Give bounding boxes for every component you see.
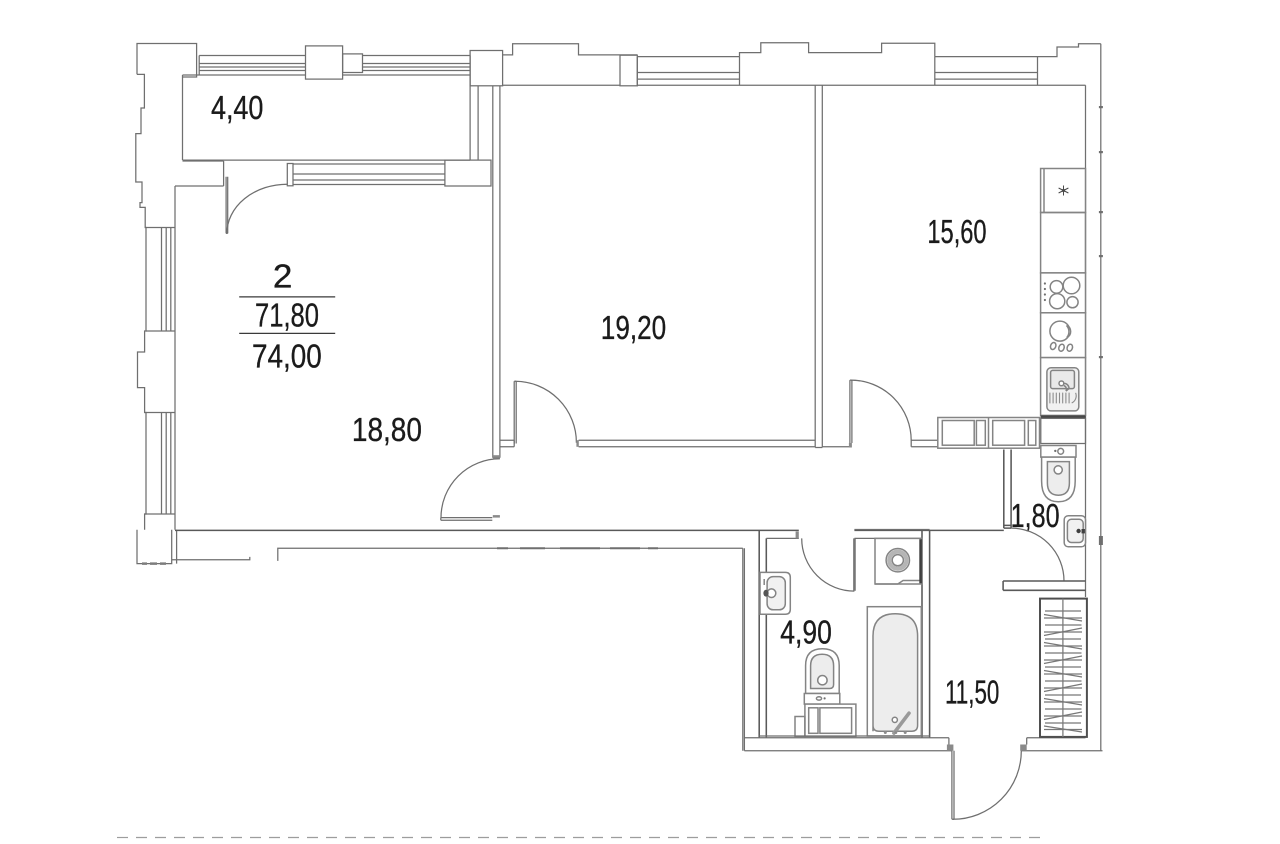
svg-text:4,40: 4,40 <box>211 89 264 126</box>
svg-text:18,80: 18,80 <box>352 411 422 448</box>
svg-text:19,20: 19,20 <box>601 309 666 346</box>
svg-text:15,60: 15,60 <box>927 213 986 250</box>
svg-text:71,80: 71,80 <box>255 297 319 334</box>
svg-text:2: 2 <box>273 258 293 295</box>
svg-text:4,90: 4,90 <box>780 614 832 651</box>
svg-text:11,50: 11,50 <box>945 673 999 710</box>
svg-text:74,00: 74,00 <box>252 337 322 374</box>
